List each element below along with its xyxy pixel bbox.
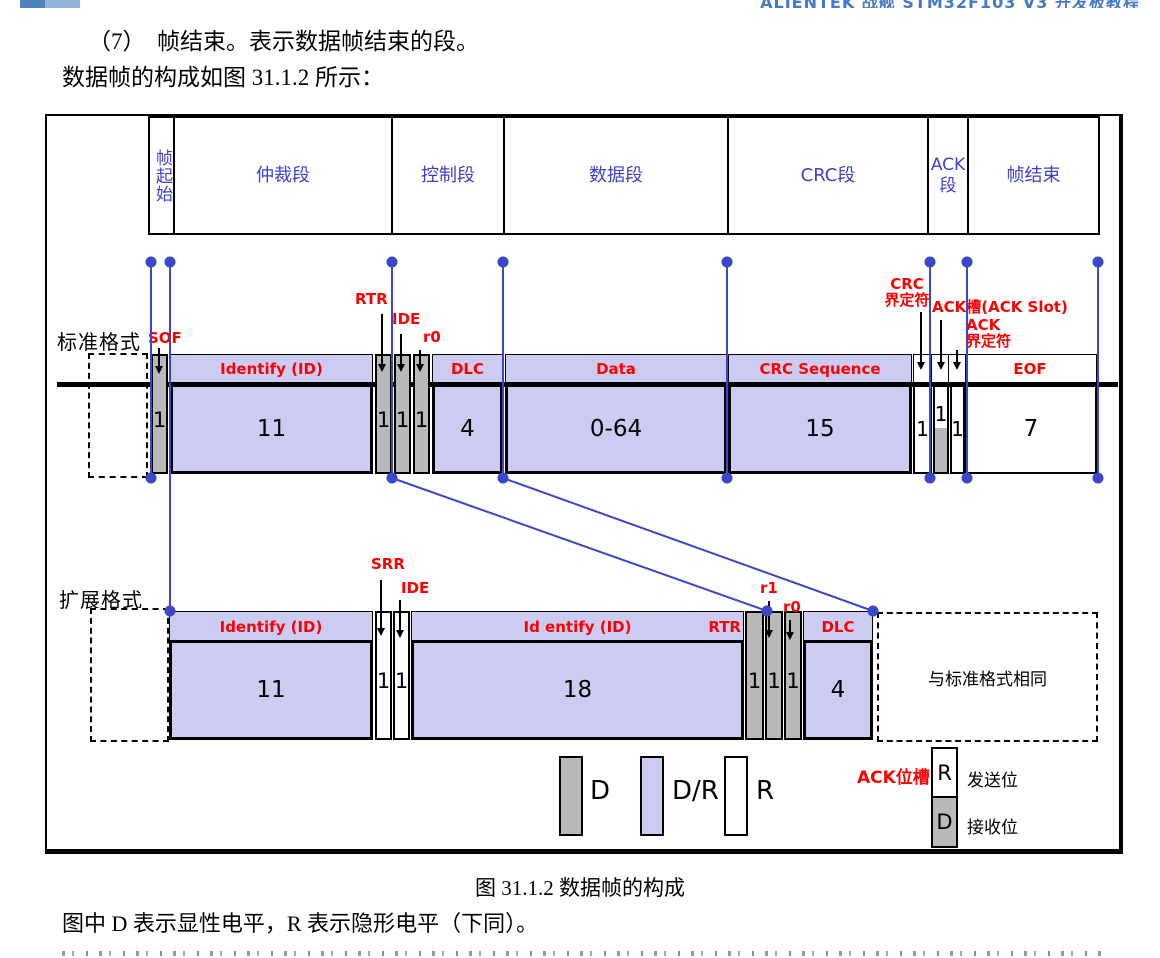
ack-delim-label-line1: ACK <box>966 317 1011 333</box>
bits-ack-slot: 1 <box>935 402 948 426</box>
legend-label-dr: D/R <box>672 776 719 806</box>
ide-label: IDE <box>392 311 420 327</box>
connector-dot <box>498 473 509 484</box>
sof-label: SOF <box>148 330 182 346</box>
col-r0: 1 <box>413 354 430 474</box>
bits-crc: 15 <box>805 416 834 442</box>
legend-recv-bit-value: D <box>936 810 952 834</box>
legend-send-bit-value: R <box>937 761 952 785</box>
ack-slot-label: ACK槽(ACK Slot) <box>932 299 1068 315</box>
cell-ext-dlc-bits: 4 <box>803 640 873 740</box>
band-ext-dlc: DLC <box>803 611 873 643</box>
col-rtr: 1 <box>375 354 392 474</box>
connector-dot <box>387 257 398 268</box>
band-dlc: DLC <box>432 354 503 384</box>
srr-label: SRR <box>371 556 405 572</box>
rtr-arrow-icon <box>378 314 386 372</box>
band-data: Data <box>505 354 727 384</box>
connector-dot <box>498 257 509 268</box>
bits-ide: 1 <box>396 408 409 472</box>
standard-leading-dashed-box <box>88 353 148 478</box>
standard-format-label: 标准格式 <box>57 326 141 355</box>
bits-data: 0-64 <box>590 416 642 442</box>
band-ext-identify2: Id entify (ID) RTR <box>411 611 744 643</box>
segment-frame-start: 帧起始 <box>148 116 175 235</box>
connector-line <box>502 262 504 478</box>
logo-block-dark <box>20 0 45 8</box>
col-ide: 1 <box>394 354 411 474</box>
cell-eof-bits: 7 <box>965 384 1097 474</box>
legend-label-d: D <box>590 776 610 806</box>
ack-delim-label: ACK 界定符 <box>966 317 1011 349</box>
connector-dot <box>146 257 157 268</box>
figure-caption: 图 31.1.2 数据帧的构成 <box>0 872 1160 902</box>
same-as-standard-note: 与标准格式相同 <box>928 665 1047 690</box>
legend-send-label: 发送位 <box>967 766 1018 791</box>
intro-line-1: （7） 帧结束。表示数据帧结束的段。 <box>88 22 479 56</box>
r1-label: r1 <box>760 580 778 596</box>
connector-dot <box>962 257 973 268</box>
connector-dot <box>165 606 176 617</box>
bits-ext-ide: 1 <box>395 669 408 738</box>
connector-dot <box>925 257 936 268</box>
legend-swatch-dominant <box>559 756 583 836</box>
document-page: ALIENTEK 战舰 STM32F103 V3 开发板教程 （7） 帧结束。表… <box>0 0 1160 958</box>
sof-arrow-icon <box>155 348 163 374</box>
connector-line <box>929 262 931 478</box>
r0-ext-label: r0 <box>783 599 801 615</box>
field-name-data: Data <box>596 361 636 377</box>
srr-arrow-icon <box>377 580 385 636</box>
bus-line <box>57 382 1118 387</box>
bits-eof: 7 <box>1024 416 1039 442</box>
bits-sof: 1 <box>153 408 166 472</box>
connector-line <box>726 262 728 478</box>
connector-dot <box>1093 473 1104 484</box>
legend-ack-slot-label: ACK位槽 <box>857 770 930 786</box>
connector-dot <box>868 606 879 617</box>
note-line: 图中 D 表示显性电平，R 表示隐形电平（下同）。 <box>62 906 538 938</box>
bits-srr: 1 <box>377 669 390 738</box>
legend-swatch-recessive <box>724 756 748 836</box>
ide-ext-label: IDE <box>401 580 429 596</box>
segment-data: 数据段 <box>503 116 729 235</box>
connector-dot <box>387 473 398 484</box>
clipped-text-line <box>62 951 1102 956</box>
cell-crc-bits: 15 <box>728 384 912 474</box>
bits-ext-r0: 1 <box>786 669 799 738</box>
page-header-title-clipped: ALIENTEK 战舰 STM32F103 V3 开发板教程 <box>560 0 1145 8</box>
connector-dot <box>722 257 733 268</box>
segment-frame-end: 帧结束 <box>967 116 1100 235</box>
bits-ext-rtr: 1 <box>748 669 761 738</box>
bits-ack-delim: 1 <box>951 417 964 441</box>
bits-identify: 11 <box>257 416 286 442</box>
legend-recv-label: 接收位 <box>967 813 1018 838</box>
band-crc: CRC Sequence <box>728 354 912 384</box>
page-header-title: ALIENTEK 战舰 STM32F103 V3 开发板教程 <box>760 0 1140 8</box>
bits-r1: 1 <box>767 669 780 738</box>
ack-delim-arrow-icon <box>953 350 961 370</box>
bits-dlc: 4 <box>460 416 475 442</box>
ack-delim-label-line2: 界定符 <box>966 333 1011 349</box>
r0-arrow-icon <box>416 350 424 372</box>
connector-line <box>391 262 393 478</box>
connector-line <box>966 262 968 478</box>
connector-dot <box>1093 257 1104 268</box>
field-name-identify: Identify (ID) <box>220 361 323 377</box>
field-name-crc: CRC Sequence <box>759 361 880 377</box>
legend-swatch-dominant-recessive <box>640 756 664 836</box>
bits-crc-delim: 1 <box>916 417 929 441</box>
cell-ext-identify2-bits: 18 <box>411 640 744 740</box>
ack-slot-arrow-icon <box>937 320 945 370</box>
connector-line <box>1097 262 1099 478</box>
band-identify: Identify (ID) <box>170 354 373 384</box>
field-name-ext-dlc: DLC <box>821 619 854 635</box>
connector-dot <box>925 473 936 484</box>
cell-ack-slot-bits: 1 <box>933 384 949 474</box>
ide-ext-arrow-icon <box>396 600 404 638</box>
rtr-label: RTR <box>355 291 388 307</box>
connector-dot <box>146 473 157 484</box>
band-divider <box>931 354 932 384</box>
crc-delim-arrow-icon <box>917 312 925 370</box>
connector-line <box>169 262 171 611</box>
field-name-ext-identify: Identify (ID) <box>220 619 323 635</box>
legend-ack-recv-bit: D <box>933 796 956 846</box>
cell-identify-bits: 11 <box>170 384 373 474</box>
field-name-ext-identify2: Id entify (ID) <box>524 619 632 635</box>
segment-control: 控制段 <box>391 116 505 235</box>
field-name-eof: EOF <box>964 361 1096 377</box>
connector-dot <box>762 606 773 617</box>
connector-dot <box>722 473 733 484</box>
band-divider <box>948 354 949 384</box>
connector-line <box>150 262 152 478</box>
bits-r0: 1 <box>415 408 428 472</box>
segment-crc: CRC段 <box>727 116 929 235</box>
intro-line-2: 数据帧的构成如图 31.1.2 所示： <box>62 58 384 92</box>
ack-slot-receiver-gray <box>935 428 947 472</box>
cell-data-bits: 0-64 <box>505 384 727 474</box>
field-name-dlc: DLC <box>451 361 484 377</box>
r0-ext-arrow-icon <box>786 620 794 640</box>
cell-ext-identify-bits: 11 <box>169 640 373 740</box>
bits-ext-dlc: 4 <box>831 677 846 703</box>
r0-label: r0 <box>423 329 441 345</box>
legend-ack-send-bit: R <box>933 749 956 796</box>
cell-dlc-bits: 4 <box>432 384 503 474</box>
extended-leading-dashed-box <box>90 608 169 742</box>
segment-arbitration: 仲裁段 <box>173 116 393 235</box>
bits-ext-identify: 11 <box>256 677 285 703</box>
segment-ack: ACK段 <box>927 116 969 235</box>
bits-ext-identify2: 18 <box>563 677 592 703</box>
cell-ack-delim-bits: 1 <box>950 384 965 474</box>
band-ext-identify: Identify (ID) <box>169 611 373 643</box>
bits-rtr: 1 <box>377 408 390 472</box>
connector-dot <box>165 257 176 268</box>
legend-ack-slot-box: R D <box>931 747 958 848</box>
extended-trailing-dashed-box: 与标准格式相同 <box>877 612 1098 742</box>
ide-arrow-icon <box>397 334 405 372</box>
rtr-ext-label: RTR <box>708 619 741 635</box>
col-ext-rtr: 1 <box>745 611 764 740</box>
logo-block-light <box>45 0 80 8</box>
legend-label-r: R <box>756 776 774 806</box>
connector-dot <box>962 473 973 484</box>
